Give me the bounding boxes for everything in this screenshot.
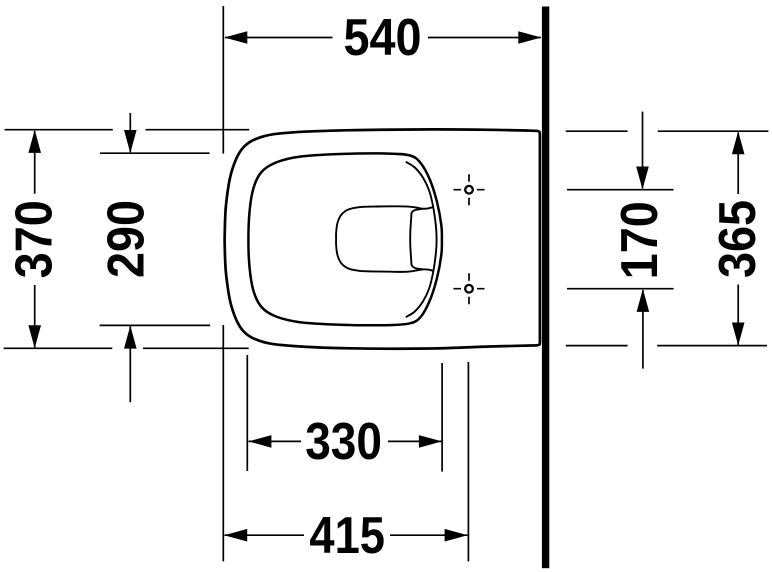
svg-text:330: 330 bbox=[305, 413, 382, 470]
svg-text:370: 370 bbox=[5, 200, 63, 278]
svg-text:365: 365 bbox=[709, 200, 767, 278]
svg-text:540: 540 bbox=[343, 9, 421, 67]
svg-text:415: 415 bbox=[309, 507, 385, 565]
svg-text:290: 290 bbox=[97, 200, 155, 278]
svg-text:170: 170 bbox=[611, 201, 669, 279]
